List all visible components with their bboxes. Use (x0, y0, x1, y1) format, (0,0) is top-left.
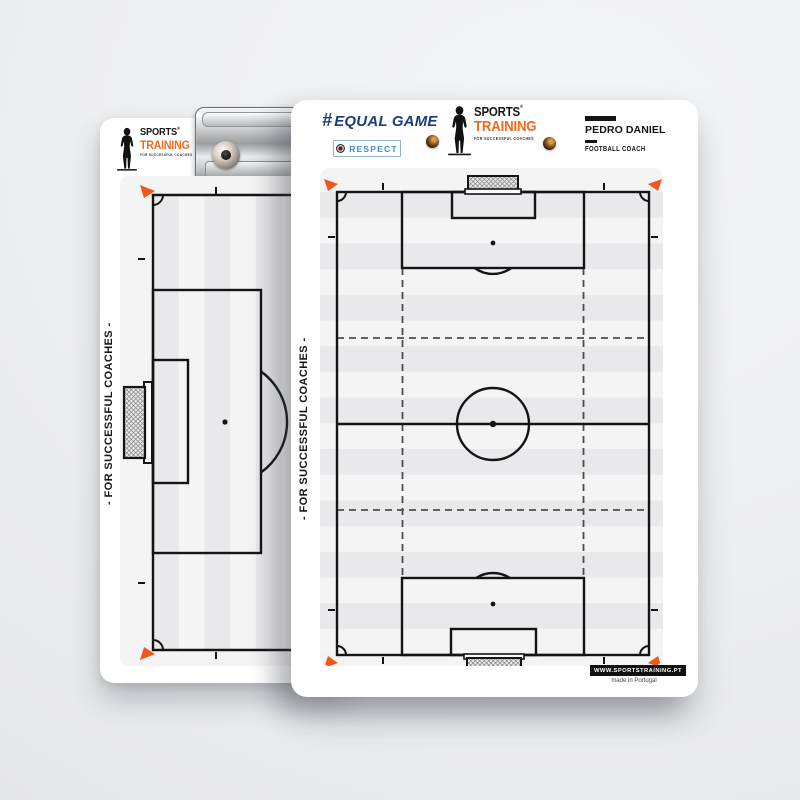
penalty-spot-top (491, 241, 496, 246)
registered-mark: ® (520, 104, 523, 109)
product-scene: SPORTS® TRAINING FOR SUCCESSFUL COACHES … (0, 0, 800, 800)
uefa-respect-logo: RESPECT (333, 140, 401, 157)
uefa-respect-badge-icon (336, 144, 345, 153)
penalty-spot (222, 419, 227, 424)
goal-net-bottom (464, 654, 524, 666)
brand-tagline: FOR SUCCESSFUL COACHES (140, 153, 192, 157)
clip-top-plate (202, 112, 302, 127)
hash-icon: # (322, 110, 332, 130)
coach-title: FOOTBALL COACH (585, 146, 653, 153)
brand-tagline: FOR SUCCESSFUL COACHES (474, 136, 536, 141)
brand-name-top: SPORTS® (474, 105, 536, 118)
penalty-spot-bottom (491, 602, 496, 607)
sports-training-logo: SPORTS® TRAINING FOR SUCCESSFUL COACHES (448, 105, 545, 157)
side-slogan-right: - FOR SUCCESSFUL COACHES - (297, 340, 311, 520)
sports-training-logo: SPORTS® TRAINING FOR SUCCESSFUL COACHES (117, 127, 200, 172)
registered-mark: ® (177, 126, 180, 131)
brand-name-bottom: TRAINING (140, 139, 192, 151)
front-clipboard: #EQUAL GAME RESPECT SPORTS® TRAINING FOR… (291, 100, 698, 697)
website-badge: WWW.SPORTSTRAINING.PT (590, 665, 686, 676)
pitch-panel-right (320, 168, 663, 666)
coach-name: PEDRO DANIEL (585, 124, 666, 136)
made-in-label: made in Portugal (590, 678, 678, 684)
magnet-dot-right (543, 137, 556, 150)
clip-rivet-hole (221, 150, 231, 160)
magnet-dot-left (426, 135, 439, 148)
coach-personalization: PEDRO DANIEL FOOTBALL COACH (585, 116, 666, 153)
clip-rivet (212, 141, 240, 169)
divider-bar (585, 116, 616, 121)
goal-net (124, 382, 152, 463)
brand-name-bottom: TRAINING (474, 119, 536, 134)
goal-net-top (465, 176, 521, 194)
equal-game-logo: #EQUAL GAME (322, 110, 438, 131)
side-slogan-left: - FOR SUCCESSFUL COACHES - (102, 325, 116, 505)
coach-silhouette-icon (448, 105, 471, 157)
divider-bar (585, 140, 597, 144)
coach-silhouette-icon (117, 127, 137, 172)
football-field-portrait (320, 168, 663, 666)
center-spot (490, 421, 496, 427)
brand-name-top: SPORTS® (140, 127, 192, 138)
